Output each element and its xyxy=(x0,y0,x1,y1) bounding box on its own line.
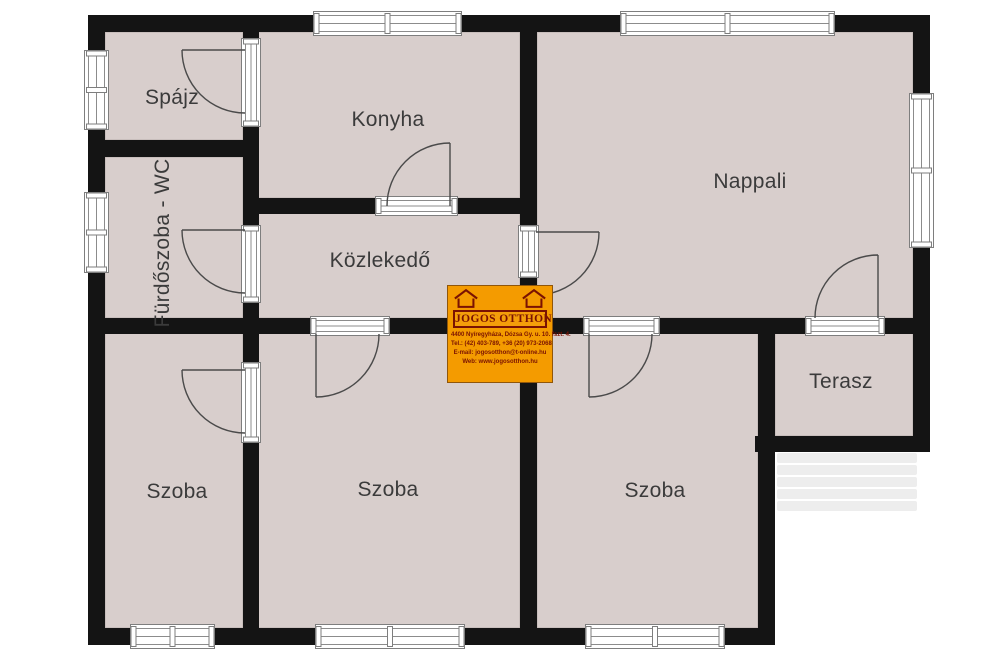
wall-segment xyxy=(243,318,259,362)
wall-segment xyxy=(243,127,259,157)
wall-segment xyxy=(243,303,259,318)
wall-segment xyxy=(88,130,105,192)
house-icon xyxy=(453,288,479,309)
room-label-szoba-left: Szoba xyxy=(146,480,207,504)
door-opening xyxy=(242,363,261,443)
wall-segment xyxy=(243,157,259,225)
window xyxy=(85,193,109,273)
wall-segment xyxy=(755,436,930,452)
wall-segment xyxy=(660,318,805,334)
wall-segment xyxy=(88,273,105,645)
watermark-web: Web: www.jogosotthon.hu xyxy=(451,358,549,367)
wall-segment xyxy=(913,15,930,95)
watermark-address: 4400 Nyíregyháza, Dózsa Gy. u. 10. fszt.… xyxy=(451,331,549,340)
room-label-furdoszoba: Fürdőszoba - WC xyxy=(151,158,175,327)
wall-segment xyxy=(88,140,258,157)
window xyxy=(586,625,725,649)
floor-plan: Spájz Konyha Nappali Fürdőszoba - WC Köz… xyxy=(0,0,1000,659)
door-opening xyxy=(806,317,885,336)
stairs-step xyxy=(777,477,917,487)
wall-segment xyxy=(758,318,775,645)
house-icon xyxy=(521,288,547,309)
wall-segment xyxy=(258,198,375,214)
door-opening xyxy=(311,317,390,336)
room-label-konyha: Konyha xyxy=(351,108,424,132)
wall-segment xyxy=(913,248,930,452)
wall-segment xyxy=(215,628,315,645)
room-label-szoba-right: Szoba xyxy=(624,479,685,503)
wall-segment xyxy=(88,15,313,32)
watermark-email: E-mail: jogosotthon@t-online.hu xyxy=(451,349,549,358)
door-opening xyxy=(242,226,261,303)
stairs-step xyxy=(777,465,917,475)
stairs-step xyxy=(777,489,917,499)
room-label-szoba-middle: Szoba xyxy=(357,478,418,502)
window xyxy=(314,12,462,36)
window xyxy=(316,625,465,649)
wall-segment xyxy=(243,15,259,38)
stairs-step xyxy=(777,453,917,463)
wall-segment xyxy=(88,318,310,334)
watermark-jogos-otthon: JOGOS OTTHON 4400 Nyíregyháza, Dózsa Gy.… xyxy=(447,285,553,383)
watermark-brand: JOGOS OTTHON xyxy=(453,310,547,328)
watermark-phone: Tel.: (42) 403-789, +36 (20) 973-2068 xyxy=(451,340,549,349)
room-label-spajz: Spájz xyxy=(145,86,199,110)
wall-segment xyxy=(88,15,105,50)
door-opening xyxy=(584,317,660,336)
room-label-kozlekedo: Közlekedő xyxy=(330,249,431,273)
wall-segment xyxy=(520,15,537,225)
watermark-house-icons xyxy=(451,288,549,309)
wall-segment xyxy=(243,443,259,645)
window xyxy=(131,625,215,649)
stairs-step xyxy=(777,501,917,511)
room-label-nappali: Nappali xyxy=(713,170,786,194)
window xyxy=(910,94,934,248)
window xyxy=(621,12,835,36)
door-opening xyxy=(519,226,539,278)
room-label-terasz: Terasz xyxy=(809,370,873,394)
window xyxy=(85,51,109,130)
wall-segment xyxy=(462,15,620,32)
